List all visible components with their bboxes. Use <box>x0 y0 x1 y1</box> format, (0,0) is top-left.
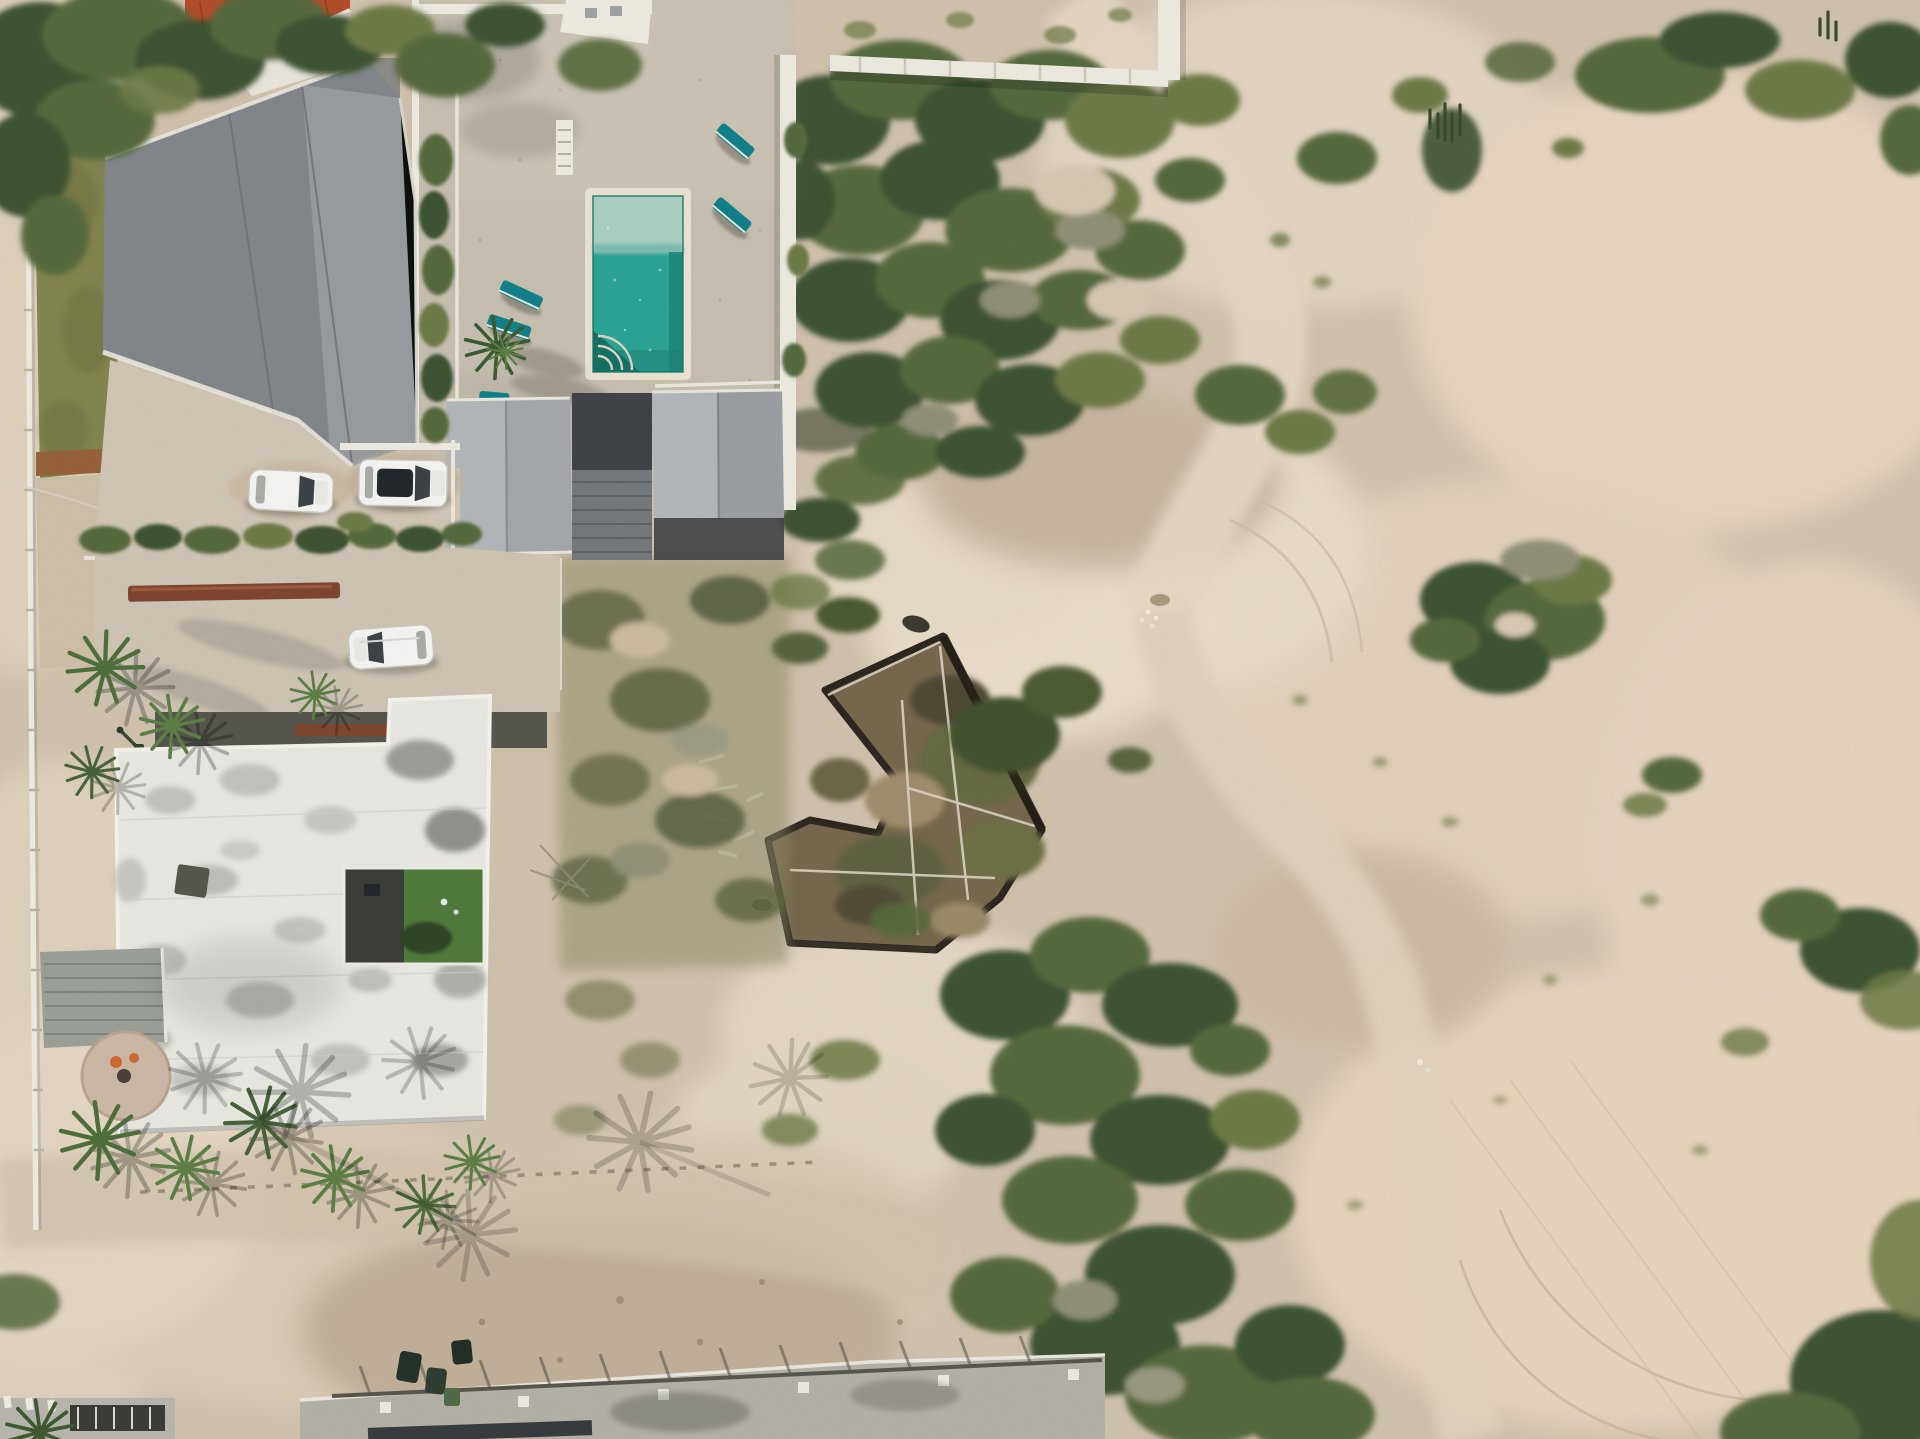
aerial-photo: Aerial top-down view of coastal villas b… <box>0 0 1920 1439</box>
aerial-photo-svg <box>0 0 1920 1439</box>
photo-grain <box>0 0 1920 1439</box>
